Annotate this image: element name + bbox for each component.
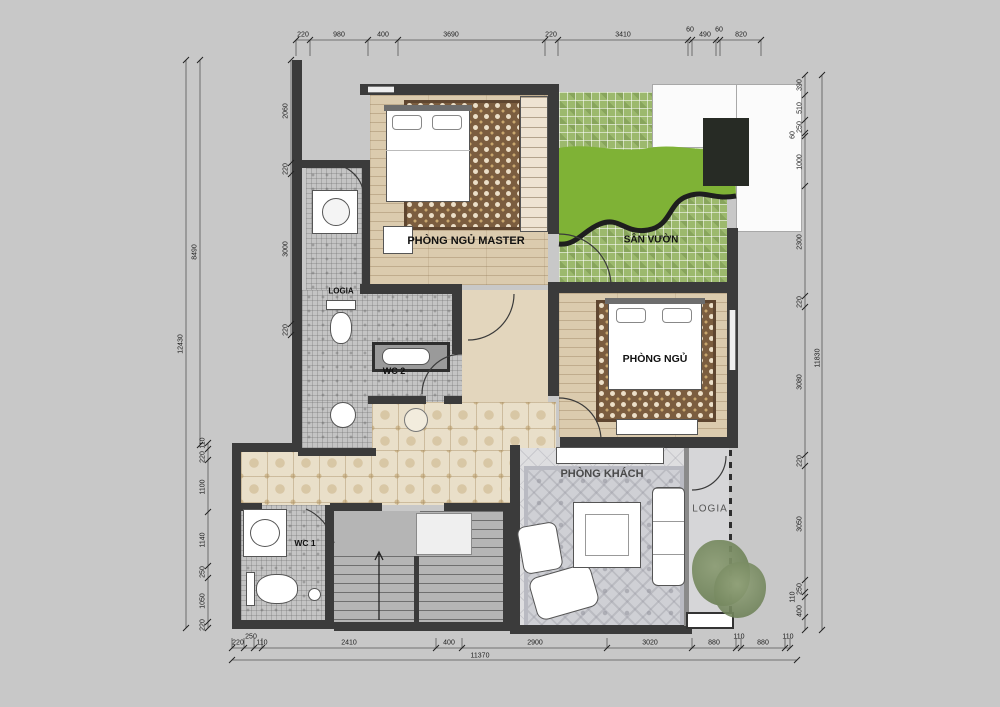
- dim-label: 220: [545, 32, 557, 39]
- dim-label: 510: [797, 102, 804, 114]
- dim-label: 3050: [797, 516, 804, 532]
- dim-label: 60: [790, 131, 797, 139]
- dim-label: 8490: [192, 244, 199, 260]
- dim-label: 11830: [815, 349, 822, 368]
- room-label-wc1: WC 1: [294, 538, 315, 548]
- dim-label: 400: [797, 605, 804, 617]
- dim-label: 250: [200, 566, 207, 578]
- dim-label: 220: [797, 455, 804, 467]
- stairs-arrow: [375, 552, 383, 620]
- dim-label: 220: [283, 324, 290, 336]
- dim-label: 3000: [283, 241, 290, 257]
- floor-plan: PHÒNG NGỦ MASTER SÂN VƯỜN PHÒNG NGỦ WC 2…: [0, 0, 1000, 707]
- dim-label: 110: [733, 634, 744, 641]
- dim-label: 3690: [443, 32, 459, 39]
- dim-label: 880: [708, 640, 720, 647]
- door-arc-wc2: [422, 354, 462, 394]
- dim-label: 60: [686, 27, 694, 34]
- room-label-living-room: PHÒNG KHÁCH: [560, 468, 643, 480]
- door-arc-logia-right: [692, 456, 726, 490]
- dim-label: 400: [443, 640, 455, 647]
- plan-linework: [0, 0, 1000, 707]
- room-label-logia-right: LOGIA: [692, 504, 728, 515]
- garden-planter: [703, 118, 749, 186]
- dim-label: 220: [200, 619, 207, 631]
- dim-label: 3020: [642, 640, 658, 647]
- dim-label: 220: [200, 451, 207, 463]
- dim-label: 110: [200, 437, 207, 448]
- room-label-logia-left: LOGIA: [328, 287, 353, 296]
- dim-label: 3410: [615, 32, 631, 39]
- door-arc-master: [468, 294, 514, 340]
- dim-label: 820: [735, 32, 747, 39]
- dim-label: 2900: [527, 640, 543, 647]
- dim-label-total: 11370: [471, 653, 490, 660]
- dim-label: 980: [333, 32, 345, 39]
- dim-label: 1050: [200, 593, 207, 609]
- door-arc-logia-left: [330, 164, 364, 198]
- dim-label: 2300: [797, 234, 804, 250]
- dim-label: 110: [782, 634, 793, 641]
- dim-label: 880: [757, 640, 769, 647]
- door-arc-bedroom: [559, 398, 601, 440]
- dim-label: 250: [797, 583, 804, 595]
- dim-label: 110: [790, 591, 797, 602]
- dim-label: 250: [245, 634, 257, 641]
- dim-label: 220: [283, 163, 290, 175]
- dim-label: 2060: [283, 103, 290, 119]
- dim-label: 490: [699, 32, 711, 39]
- dim-label: 1000: [797, 154, 804, 170]
- dim-label: 220: [232, 640, 244, 647]
- dim-label: 250: [797, 121, 804, 133]
- dim-label: 220: [797, 296, 804, 308]
- room-label-wc2: WC 2: [383, 366, 406, 376]
- room-label-master-bedroom: PHÒNG NGỦ MASTER: [407, 235, 524, 247]
- dim-label: 110: [256, 640, 267, 647]
- dim-label: 220: [297, 32, 309, 39]
- dim-label: 400: [377, 32, 389, 39]
- room-label-garden: SÂN VƯỜN: [624, 235, 679, 246]
- dim-label: 2410: [341, 640, 357, 647]
- dim-label: 1100: [200, 479, 207, 494]
- dim-label: 60: [715, 27, 723, 34]
- dim-label: 1140: [200, 532, 207, 547]
- dim-label: 12430: [178, 334, 185, 353]
- room-label-bedroom: PHÒNG NGỦ: [623, 353, 688, 365]
- dim-label: 390: [797, 79, 804, 91]
- dim-label: 3080: [797, 374, 804, 390]
